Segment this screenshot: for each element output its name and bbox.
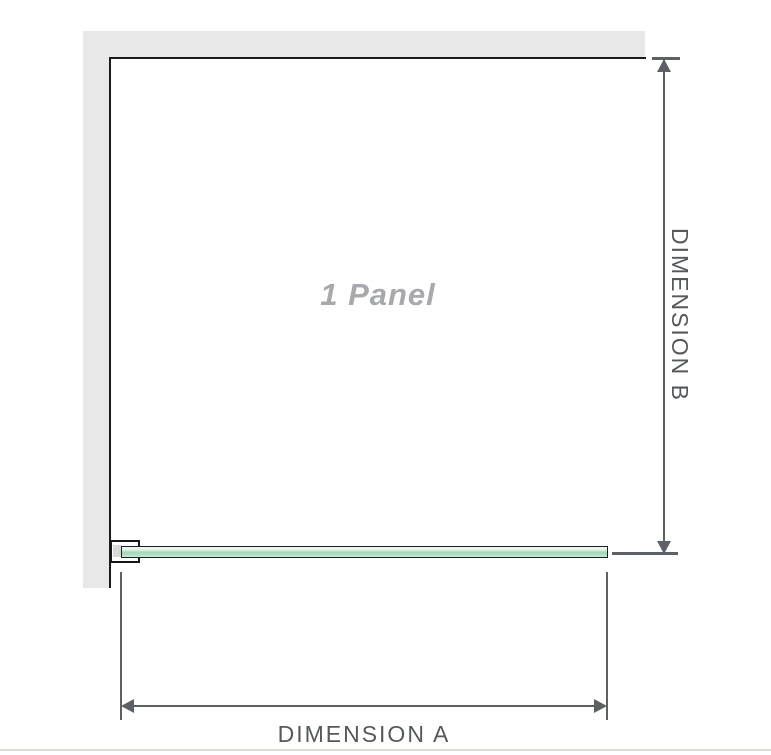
arrow-down-icon xyxy=(657,541,671,554)
dimension-b-line xyxy=(663,60,665,552)
bottom-rule xyxy=(0,749,771,751)
panel-label: 1 Panel xyxy=(110,277,646,313)
arrow-up-icon xyxy=(657,59,671,72)
arrow-left-icon xyxy=(121,699,134,713)
dimension-a-label: DIMENSION A xyxy=(114,721,614,748)
panel-front-outline xyxy=(109,57,646,588)
diagram-canvas: 1 Panel DIMENSION B DIMENSION A xyxy=(0,0,771,755)
wall-top xyxy=(83,31,645,57)
dimension-b-label: DIMENSION B xyxy=(667,205,693,425)
dimension-a-line xyxy=(131,705,597,707)
wall-left xyxy=(83,31,110,588)
dimension-a-extension-right xyxy=(606,572,608,720)
dimension-a-extension-left xyxy=(120,572,122,720)
arrow-right-icon xyxy=(594,699,607,713)
glass-panel-plan-view xyxy=(121,546,608,558)
